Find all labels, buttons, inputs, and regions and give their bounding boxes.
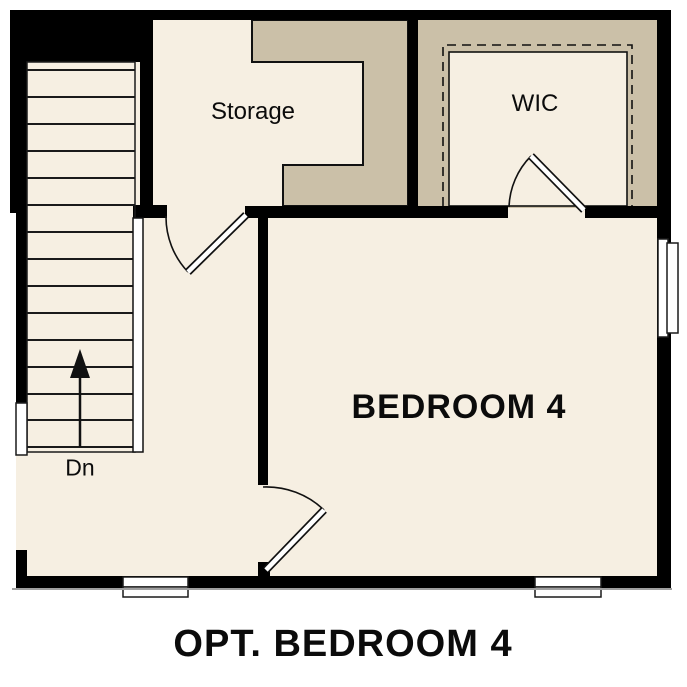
plan-title: OPT. BEDROOM 4 bbox=[173, 625, 512, 663]
storage-room-label: Storage bbox=[211, 100, 295, 124]
wall-bedroom-left bbox=[258, 212, 268, 485]
floor-plan: Storage WIC BEDROOM 4 Dn OPT. BEDROOM 4 bbox=[0, 0, 687, 687]
wall-wic-bottom-right bbox=[585, 206, 657, 218]
floor-plan-drawing bbox=[0, 0, 687, 687]
wic-room-label: WIC bbox=[512, 92, 559, 116]
window-hall-bottom-inner bbox=[123, 577, 188, 587]
wall-top-left-block bbox=[10, 10, 153, 62]
wic-inner-floor bbox=[449, 52, 627, 206]
stairs-down-label: Dn bbox=[65, 457, 94, 480]
wall-bedroom-top bbox=[245, 206, 508, 218]
wall-hall-storage-stub bbox=[133, 205, 167, 218]
window-left-wall bbox=[16, 403, 27, 455]
stair-railing bbox=[133, 218, 143, 452]
wall-storage-wic-divider bbox=[408, 10, 418, 218]
bedroom-room-label: BEDROOM 4 bbox=[352, 390, 567, 424]
wall-left-stub bbox=[16, 550, 27, 577]
wall-storage-left bbox=[140, 10, 153, 218]
window-right-wall-outer bbox=[667, 243, 678, 333]
window-bedroom-bottom-inner bbox=[535, 577, 601, 587]
wall-left-mid bbox=[16, 213, 27, 403]
wall-left-upper bbox=[10, 10, 27, 213]
bottom-shadow-line bbox=[12, 588, 672, 590]
